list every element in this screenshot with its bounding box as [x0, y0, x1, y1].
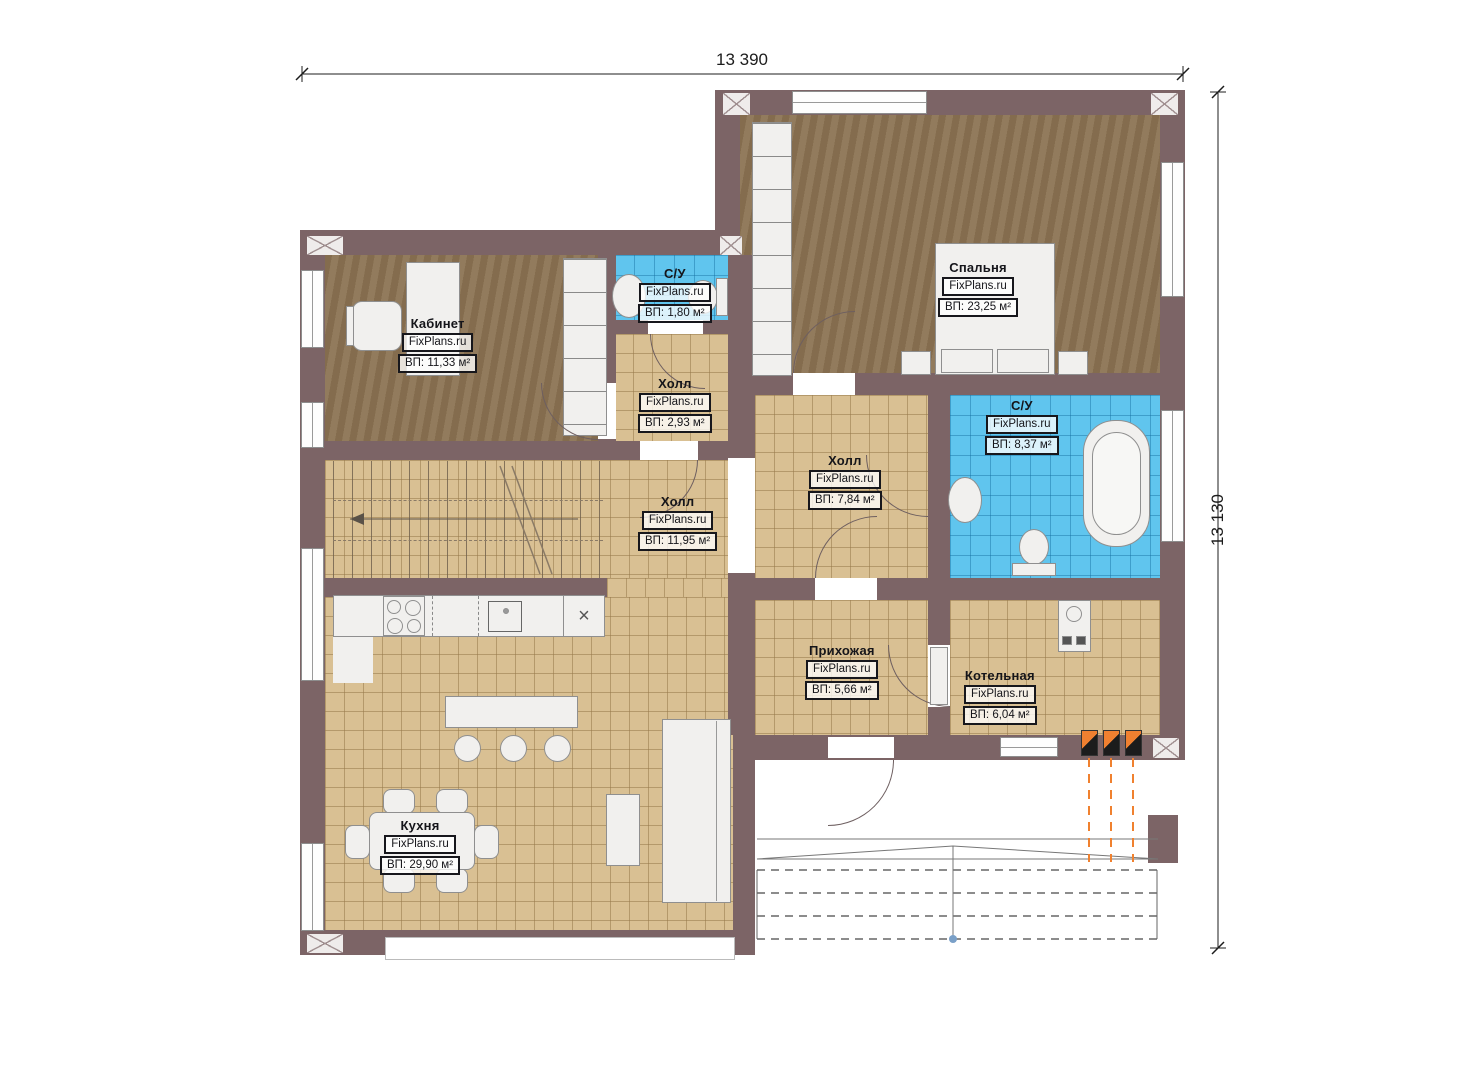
counter-corner [333, 637, 373, 683]
office-chair [352, 301, 402, 351]
kitchen-island [445, 696, 578, 728]
gas-meter [1081, 730, 1098, 756]
room-name: Холл [658, 376, 691, 391]
door-leaf [930, 647, 948, 705]
room-name: Спальня [949, 260, 1007, 275]
room-name: С/У [664, 266, 686, 281]
corner-brace-icon [1153, 738, 1179, 758]
floor-plan-canvas: { "dimensions": { "width": "13 390", "he… [0, 0, 1473, 1080]
wardrobe [752, 122, 792, 376]
watermark: FixPlans.ru [964, 685, 1036, 704]
window [792, 91, 927, 114]
room-label-boiler: Котельная FixPlans.ru ВП: 6,04 м² [963, 668, 1037, 725]
corner-brace-icon [307, 236, 343, 255]
door-opening [815, 578, 877, 600]
window [301, 402, 324, 448]
window [301, 843, 324, 931]
stair-guide-line [333, 540, 603, 541]
window [301, 548, 324, 681]
wall [755, 735, 1185, 760]
boiler-switch [1062, 636, 1072, 645]
watermark: FixPlans.ru [986, 415, 1058, 434]
porch-pillar [1148, 815, 1178, 863]
room-label-hall-mid: Холл FixPlans.ru ВП: 7,84 м² [808, 453, 882, 510]
room-label-office: Кабинет FixPlans.ru ВП: 11,33 м² [398, 316, 477, 373]
bar-stool [454, 735, 481, 762]
bar-stool [544, 735, 571, 762]
wall [733, 735, 755, 932]
dining-chair [474, 825, 499, 859]
watermark: FixPlans.ru [639, 283, 711, 302]
bar-stool [500, 735, 527, 762]
gas-meter [1103, 730, 1120, 756]
door-opening [640, 441, 698, 460]
dining-chair [436, 789, 468, 814]
watermark: FixPlans.ru [402, 333, 474, 352]
staircase [333, 461, 603, 578]
room-area: ВП: 29,90 м² [380, 856, 460, 875]
toilet-tank [716, 278, 728, 316]
kitchen-sink [488, 601, 522, 632]
appliance: × [563, 595, 605, 637]
side-cabinet [606, 794, 640, 866]
gas-meter [1125, 730, 1142, 756]
entrance-door-arc [828, 760, 894, 826]
vent-grille [1000, 737, 1058, 757]
watermark: FixPlans.ru [384, 835, 456, 854]
nightstand [901, 351, 931, 375]
dining-chair [383, 789, 415, 814]
entrance-door-opening [828, 737, 894, 758]
room-label-hall-stairs: Холл FixPlans.ru ВП: 11,95 м² [638, 494, 717, 551]
office-chair-back [346, 306, 354, 346]
door-opening [793, 373, 855, 395]
cabinet-divider [716, 721, 717, 901]
wall [928, 395, 950, 578]
stair-guide-line [333, 500, 603, 501]
room-name: Холл [661, 494, 694, 509]
room-area: ВП: 23,25 м² [938, 298, 1018, 317]
room-label-entry: Прихожая FixPlans.ru ВП: 5,66 м² [805, 643, 879, 700]
room-area: ВП: 2,93 м² [638, 414, 712, 433]
room-name: Прихожая [809, 643, 875, 658]
corner-brace-icon [1151, 93, 1178, 115]
room-area: ВП: 11,95 м² [638, 532, 717, 551]
watermark: FixPlans.ru [942, 277, 1014, 296]
dining-chair [345, 825, 370, 859]
counter-divider [478, 596, 479, 636]
room-name: С/У [1011, 398, 1033, 413]
appliance-x-icon: × [578, 605, 590, 628]
room-label-bathroom: С/У FixPlans.ru ВП: 8,37 м² [985, 398, 1059, 455]
room-area: ВП: 6,04 м² [963, 706, 1037, 725]
floor-passage [607, 578, 733, 598]
burner [405, 600, 421, 616]
window [301, 270, 324, 348]
kitchen-patio-step [385, 937, 735, 960]
pillow [941, 349, 993, 373]
wall [715, 90, 1185, 115]
toilet [1019, 529, 1049, 565]
room-name: Кабинет [411, 316, 465, 331]
counter-divider [432, 596, 433, 636]
room-area: ВП: 1,80 м² [638, 304, 712, 323]
window [1161, 162, 1184, 297]
room-label-wc-small: С/У FixPlans.ru ВП: 1,80 м² [638, 266, 712, 323]
room-label-hall-small: Холл FixPlans.ru ВП: 2,93 м² [638, 376, 712, 433]
burner [387, 600, 401, 614]
boiler-switch [1076, 636, 1086, 645]
room-name: Котельная [965, 668, 1035, 683]
room-label-bedroom: Спальня FixPlans.ru ВП: 23,25 м² [938, 260, 1018, 317]
passage-opening [728, 458, 755, 573]
window [1161, 410, 1184, 542]
burner [407, 619, 421, 633]
watermark: FixPlans.ru [642, 511, 714, 530]
dimension-width-label: 13 390 [690, 50, 794, 70]
room-area: ВП: 8,37 м² [985, 436, 1059, 455]
nightstand [1058, 351, 1088, 375]
room-area: ВП: 5,66 м² [805, 681, 879, 700]
room-name: Холл [828, 453, 861, 468]
tall-cabinet [662, 719, 731, 903]
pillow [997, 349, 1049, 373]
watermark: FixPlans.ru [639, 393, 711, 412]
watermark: FixPlans.ru [806, 660, 878, 679]
wall [300, 230, 740, 255]
room-label-kitchen: Кухня FixPlans.ru ВП: 29,90 м² [380, 818, 460, 875]
watermark: FixPlans.ru [809, 470, 881, 489]
room-area: ВП: 11,33 м² [398, 354, 477, 373]
bathtub-inner [1092, 432, 1141, 535]
dimension-height-label: 13 130 [1208, 480, 1228, 560]
corner-brace-icon [720, 236, 742, 255]
corner-brace-icon [307, 934, 343, 953]
room-name: Кухня [401, 818, 440, 833]
sink [948, 477, 982, 523]
room-area: ВП: 7,84 м² [808, 491, 882, 510]
boiler-dial [1066, 606, 1082, 622]
toilet-base [1012, 563, 1056, 576]
burner [387, 618, 403, 634]
corner-brace-icon [723, 93, 750, 115]
kitchen-sink-drain [503, 608, 509, 614]
